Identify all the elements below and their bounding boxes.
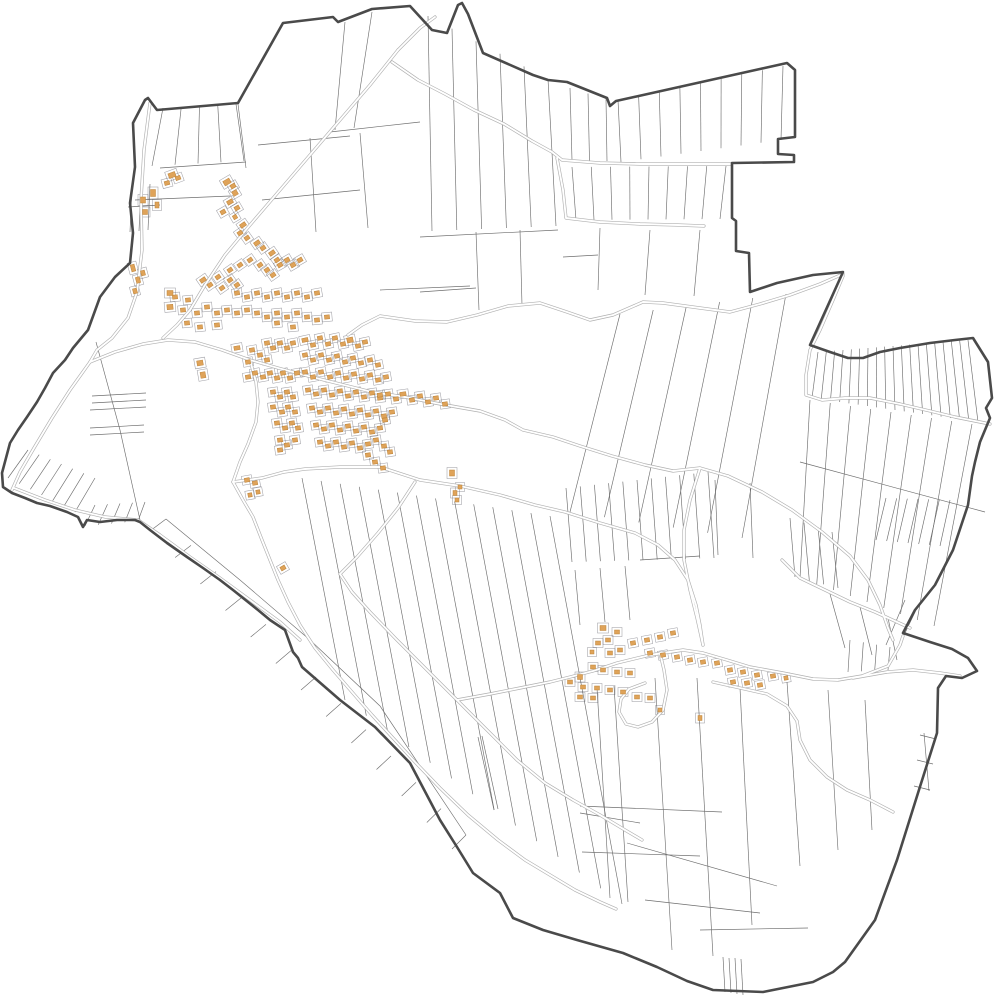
building-footprint xyxy=(219,285,225,291)
parcel-line xyxy=(90,407,146,410)
road-core xyxy=(233,467,703,645)
parcel-line xyxy=(800,462,985,512)
building-footprint xyxy=(302,370,308,375)
building-footprint xyxy=(361,395,367,400)
building-footprint xyxy=(313,392,319,397)
building-footprint xyxy=(141,197,146,203)
building-footprint xyxy=(393,397,399,402)
parcel-line xyxy=(625,566,630,620)
building-footprint xyxy=(249,348,255,353)
road-core xyxy=(14,488,300,640)
parcel-strip-line xyxy=(500,54,506,228)
building-footprint xyxy=(164,180,170,185)
building-footprint xyxy=(361,425,367,430)
building-footprint xyxy=(309,406,315,411)
building-footprint xyxy=(350,356,356,361)
building-footprint xyxy=(367,373,373,378)
parcel-strip-line xyxy=(276,651,291,664)
building-footprint xyxy=(400,392,406,397)
building-footprint xyxy=(223,178,232,186)
building-footprint xyxy=(317,410,323,415)
building-footprints-layer xyxy=(130,171,788,720)
road-casing xyxy=(233,467,703,645)
parcel-strip-line xyxy=(550,516,622,904)
building-footprint xyxy=(277,262,283,268)
parcel-line xyxy=(627,843,777,886)
parcel-strip-line xyxy=(821,351,826,399)
parcel-line xyxy=(238,104,246,168)
building-footprint xyxy=(227,277,233,283)
building-footprint xyxy=(648,696,653,700)
building-footprint xyxy=(248,493,253,498)
building-footprint xyxy=(450,470,455,476)
parcel-line xyxy=(330,122,420,132)
building-footprint xyxy=(590,650,594,654)
building-footprint xyxy=(657,635,663,640)
parcel-line xyxy=(575,570,580,625)
building-footprint xyxy=(284,315,289,319)
building-footprint xyxy=(615,670,620,674)
parcel-strip-line xyxy=(377,756,392,770)
building-footprint xyxy=(270,346,276,351)
road-casing xyxy=(619,653,667,727)
building-footprint xyxy=(377,426,383,431)
building-footprint xyxy=(373,438,379,443)
building-footprint xyxy=(389,410,395,415)
building-footprint xyxy=(578,675,583,680)
building-footprint xyxy=(333,440,339,445)
building-footprint xyxy=(313,423,319,428)
building-footprint xyxy=(314,291,320,296)
building-footprint xyxy=(279,410,285,415)
building-footprint xyxy=(130,264,136,272)
building-footprint xyxy=(234,291,240,296)
building-footprint xyxy=(417,394,423,399)
parcel-strip-line xyxy=(609,483,615,561)
building-footprint xyxy=(245,375,251,380)
parcel-strip-line xyxy=(830,351,834,401)
building-footprint xyxy=(277,448,283,453)
road-casing xyxy=(12,362,90,490)
parcel-line xyxy=(694,230,700,296)
building-footprint xyxy=(349,441,355,446)
building-footprint xyxy=(628,671,633,675)
parcel-line xyxy=(600,568,605,622)
parcel-strip-line xyxy=(929,500,939,545)
parcel-line xyxy=(160,162,246,168)
building-footprint xyxy=(660,653,666,658)
parcel-strip-line xyxy=(397,493,451,779)
parcel-strip-line xyxy=(651,478,657,559)
building-footprint xyxy=(353,390,359,395)
building-footprint xyxy=(264,295,270,300)
building-footprint xyxy=(353,429,359,434)
building-footprint xyxy=(334,354,340,359)
building-footprint xyxy=(197,360,204,366)
parcel-line xyxy=(741,959,743,995)
building-footprint xyxy=(317,440,323,445)
building-footprint xyxy=(358,361,364,366)
building-footprint xyxy=(372,460,378,465)
parcel-strip-line xyxy=(840,350,843,402)
building-footprint xyxy=(351,372,357,377)
building-footprint xyxy=(260,375,266,380)
building-footprint xyxy=(578,695,583,699)
building-footprint xyxy=(345,424,351,429)
building-footprint xyxy=(325,342,331,347)
parcel-strip-line xyxy=(812,352,818,398)
road-core xyxy=(713,682,893,812)
parcel-strip-line xyxy=(659,92,661,157)
building-footprint xyxy=(314,318,319,322)
building-footprint xyxy=(608,651,613,655)
building-footprint xyxy=(568,680,573,684)
road-core xyxy=(163,50,398,338)
parcel-strip-line xyxy=(720,166,726,219)
parcel-line xyxy=(920,735,936,739)
building-footprint xyxy=(700,660,706,665)
building-footprint xyxy=(332,336,338,341)
parcel-strip-line xyxy=(702,166,707,219)
parcel-strip-line xyxy=(708,298,753,533)
building-footprint xyxy=(244,478,250,483)
parcel-strip-line xyxy=(867,412,891,602)
road-casing xyxy=(348,274,843,335)
building-footprint xyxy=(343,376,349,381)
building-footprint xyxy=(244,308,249,312)
parcel-strip-line xyxy=(708,472,714,558)
building-footprint xyxy=(647,651,653,656)
building-footprint xyxy=(644,638,650,643)
building-footprint xyxy=(253,240,260,247)
building-footprint xyxy=(295,426,301,431)
building-footprint xyxy=(284,443,290,448)
building-footprint xyxy=(349,412,355,417)
building-footprint xyxy=(227,267,233,273)
building-footprint xyxy=(280,565,286,571)
building-footprint xyxy=(337,389,343,394)
parcel-strip-line xyxy=(701,83,702,151)
parcel-line xyxy=(92,400,146,403)
parcel-strip-line xyxy=(226,598,242,611)
building-footprint xyxy=(254,291,260,296)
building-footprint xyxy=(232,214,237,219)
road-core xyxy=(12,362,90,490)
building-footprint xyxy=(347,337,354,343)
building-footprint xyxy=(621,690,626,694)
building-footprint xyxy=(591,665,596,669)
parcel-strip-line xyxy=(934,424,972,626)
building-footprint xyxy=(264,315,269,319)
building-footprint xyxy=(387,450,393,455)
road-casing-layer xyxy=(12,17,990,909)
road-casing xyxy=(14,488,300,640)
parcel-line xyxy=(90,432,144,435)
parcel-strip-line xyxy=(428,16,432,231)
parcel-strip-line xyxy=(960,341,969,421)
parcel-strip-line xyxy=(848,640,850,672)
parcel-strip-line xyxy=(604,310,653,517)
building-footprint xyxy=(185,298,190,302)
parcel-line xyxy=(723,957,725,992)
building-footprint xyxy=(290,395,296,400)
building-footprint xyxy=(234,205,240,211)
building-footprint xyxy=(369,391,375,396)
building-footprint xyxy=(143,210,148,215)
building-footprint xyxy=(267,371,273,376)
building-footprint xyxy=(244,235,250,241)
building-footprint xyxy=(670,631,676,636)
building-footprint xyxy=(237,262,243,268)
building-footprint xyxy=(310,343,316,348)
parcel-strip-line xyxy=(455,501,516,825)
parcel-strip-line xyxy=(804,523,809,581)
building-footprint xyxy=(595,686,600,690)
parcel-strip-line xyxy=(340,484,387,732)
parcel-strip-line xyxy=(474,504,537,841)
parcel-strip-line xyxy=(531,513,601,888)
building-footprint xyxy=(226,199,233,205)
building-footprint xyxy=(287,376,293,381)
building-footprint xyxy=(341,445,347,450)
parcel-line xyxy=(90,425,144,428)
building-footprint xyxy=(274,376,280,381)
building-footprint xyxy=(305,388,311,393)
parcel-line xyxy=(735,958,737,994)
building-footprint xyxy=(382,418,388,423)
building-footprint xyxy=(365,453,371,458)
building-footprint xyxy=(341,407,347,412)
parcel-line xyxy=(700,928,808,930)
building-footprint xyxy=(630,641,636,646)
parcel-strip-line xyxy=(666,166,668,219)
parcel-strip-line xyxy=(684,166,688,219)
cadastral-map-page xyxy=(0,0,1000,1000)
building-footprint xyxy=(373,409,379,414)
building-footprint xyxy=(324,315,329,319)
building-footprint xyxy=(151,190,156,197)
parcel-strip-line xyxy=(452,29,457,230)
parcel-strip-line xyxy=(591,167,594,220)
parcel-line xyxy=(92,393,146,396)
parcel-strip-line xyxy=(861,642,863,671)
parcel-strip-line xyxy=(218,105,221,162)
building-footprint xyxy=(318,370,324,375)
building-footprint xyxy=(277,438,283,443)
building-footprint xyxy=(770,674,776,679)
building-footprint xyxy=(335,371,341,376)
building-footprint xyxy=(257,353,263,358)
building-footprint xyxy=(200,372,206,379)
building-footprint xyxy=(244,295,250,300)
building-footprint xyxy=(254,311,259,315)
building-footprint xyxy=(167,291,173,296)
building-footprint xyxy=(369,430,375,435)
building-footprint xyxy=(321,427,327,432)
road-casing xyxy=(782,560,910,628)
parcel-strip-line xyxy=(637,480,643,560)
building-footprint xyxy=(285,405,291,410)
parcel-line xyxy=(580,806,722,812)
parcel-polyline xyxy=(96,342,140,520)
building-footprint xyxy=(155,202,159,208)
parcel-line xyxy=(563,255,598,257)
building-footprint xyxy=(458,485,462,489)
building-footprint xyxy=(318,353,324,358)
building-footprint xyxy=(290,325,295,329)
building-footprint xyxy=(377,393,383,398)
building-footprint xyxy=(329,423,335,428)
parcel-strip-line xyxy=(402,782,416,796)
parcel-strip-line xyxy=(680,87,681,154)
parcel-line xyxy=(645,230,650,295)
building-footprint xyxy=(180,308,185,312)
map-canvas xyxy=(0,0,1000,1000)
parcel-strip-line xyxy=(918,344,923,414)
parcel-strip-line xyxy=(935,343,941,417)
building-footprint xyxy=(167,304,173,310)
parcel-strip-line xyxy=(251,624,266,637)
parcel-strip-line xyxy=(198,106,200,164)
building-footprint xyxy=(740,670,746,675)
building-footprint xyxy=(385,392,391,397)
building-footprint xyxy=(355,344,361,349)
road-casing xyxy=(90,340,728,476)
building-footprint xyxy=(698,716,702,721)
building-footprint xyxy=(264,358,270,363)
building-footprint xyxy=(409,398,415,403)
building-footprint xyxy=(615,630,620,634)
parcel-strip-line xyxy=(606,99,607,161)
road-casing xyxy=(457,636,903,700)
building-footprint xyxy=(184,321,189,325)
road-core xyxy=(457,636,903,700)
building-footprint xyxy=(270,405,276,410)
building-footprint xyxy=(359,377,365,382)
parcel-strip-line xyxy=(781,66,783,140)
building-footprint xyxy=(294,311,299,315)
road-casing xyxy=(340,482,642,840)
parcel-strip-line xyxy=(138,502,145,521)
parcel-line xyxy=(830,594,845,648)
road-core xyxy=(348,274,843,335)
parcel-line xyxy=(865,700,872,830)
building-footprint xyxy=(302,353,308,358)
road-casing xyxy=(557,158,704,226)
parcel-strip-line xyxy=(175,107,181,165)
parcel-strip-line xyxy=(152,108,163,166)
building-footprint xyxy=(317,336,323,341)
building-footprint xyxy=(658,708,662,712)
parcel-strip-line xyxy=(623,482,629,561)
building-footprint xyxy=(224,308,229,312)
parcel-line xyxy=(914,786,930,790)
building-footprint xyxy=(345,394,351,399)
parcel-line xyxy=(360,133,368,228)
parcel-strip-line xyxy=(566,488,572,562)
building-footprint xyxy=(442,402,448,407)
building-footprint xyxy=(289,421,295,426)
parcel-strip-line xyxy=(665,477,671,559)
parcel-strip-line xyxy=(875,645,877,671)
parcel-lines-layer xyxy=(8,12,985,995)
building-footprint xyxy=(365,442,371,447)
building-footprint xyxy=(357,408,363,413)
building-footprint xyxy=(329,393,335,398)
building-footprint xyxy=(277,341,283,346)
building-footprint xyxy=(194,311,199,315)
building-footprint xyxy=(600,626,606,631)
parcel-strip-line xyxy=(761,70,762,143)
parcel-strip-line xyxy=(588,94,590,161)
building-footprint xyxy=(340,342,346,347)
parcel-strip-line xyxy=(436,498,495,809)
commune-boundary-layer xyxy=(2,3,992,992)
building-footprint xyxy=(270,390,276,395)
parcel-line xyxy=(715,480,718,555)
parcel-line xyxy=(729,958,731,993)
building-footprint xyxy=(744,681,750,686)
parcel-line xyxy=(645,900,760,913)
parcel-strip-line xyxy=(887,498,897,541)
road-casing xyxy=(233,482,616,909)
parcel-line xyxy=(598,228,600,290)
building-footprint xyxy=(204,305,209,309)
parcel-line xyxy=(354,12,372,128)
parcel-strip-line xyxy=(236,104,244,161)
building-footprint xyxy=(453,491,457,496)
building-footprint xyxy=(365,413,371,418)
parcel-line xyxy=(597,688,610,898)
commune-boundary-outline xyxy=(2,3,992,992)
building-footprint xyxy=(375,378,381,383)
building-footprint xyxy=(284,346,290,351)
building-footprint xyxy=(327,375,333,380)
parcel-line xyxy=(420,288,476,292)
parcel-strip-line xyxy=(926,343,932,415)
building-footprint xyxy=(294,291,300,296)
building-footprint xyxy=(234,346,241,351)
parcel-line xyxy=(860,607,872,655)
road-core xyxy=(233,482,616,909)
parcel-strip-line xyxy=(648,167,649,220)
parcel-strip-line xyxy=(30,459,50,489)
parcel-line xyxy=(476,232,479,310)
parcel-strip-line xyxy=(884,415,912,608)
building-footprint xyxy=(257,262,263,268)
parcel-strip-line xyxy=(639,96,641,160)
parcel-strip-line xyxy=(901,345,904,411)
building-footprint xyxy=(256,490,261,495)
parcel-strip-line xyxy=(800,400,810,578)
building-footprint xyxy=(282,426,288,431)
parcel-strip-line xyxy=(611,167,613,220)
building-footprint xyxy=(635,695,640,699)
building-footprint xyxy=(234,282,240,288)
building-footprint xyxy=(297,257,303,263)
parcel-strip-line xyxy=(301,677,316,690)
building-footprint xyxy=(357,446,363,451)
building-footprint xyxy=(455,498,459,502)
parcel-line xyxy=(482,736,498,809)
building-footprint xyxy=(596,641,601,645)
building-footprint xyxy=(618,648,623,652)
building-footprint xyxy=(245,360,251,365)
parcel-line xyxy=(258,136,350,145)
parcel-strip-line xyxy=(524,66,531,227)
parcel-strip-line xyxy=(919,499,929,544)
building-footprint xyxy=(362,340,368,345)
